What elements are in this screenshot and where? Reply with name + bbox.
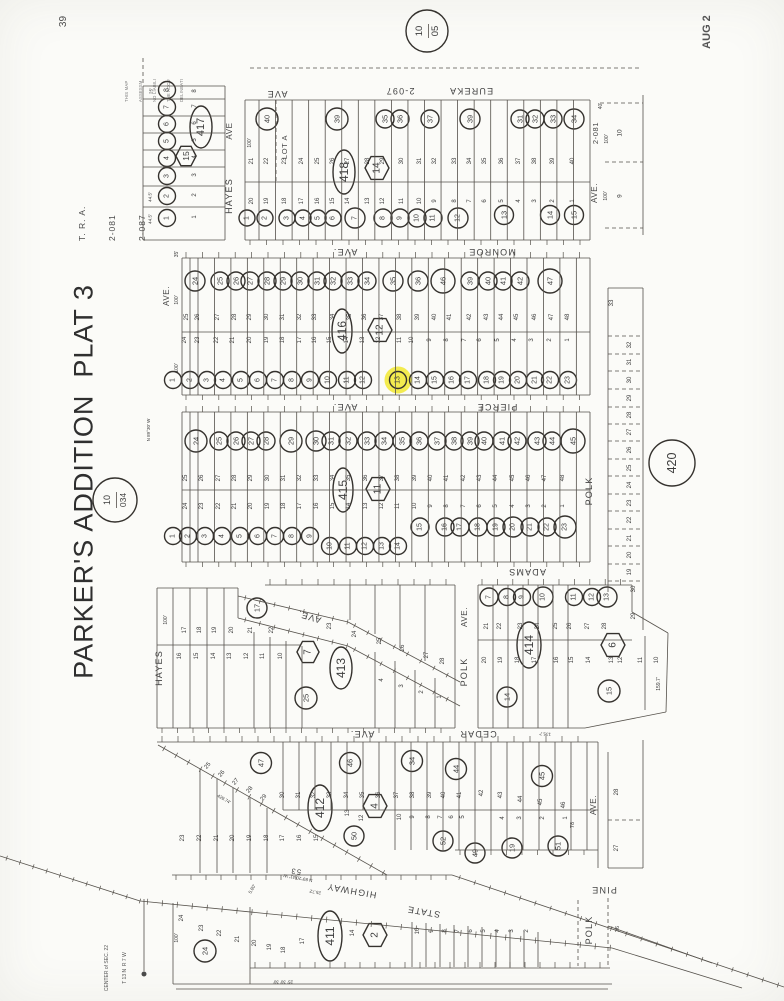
svg-text:29: 29 [247,313,253,320]
svg-text:9: 9 [617,194,624,198]
svg-text:30: 30 [265,474,271,481]
strip-420-lot-number-19: 19 [627,568,633,575]
block-418-top-parcel-circle-39: 39 [326,108,348,130]
svg-text:14: 14 [344,336,350,343]
block-416-lower-lot-number-17: 17 [297,336,303,343]
block-415-bottom-parcel-circles-b-13: 13 [374,538,391,555]
block-417-parcel-circles: 87654321 [159,82,176,227]
block-416-lower-lot-number-22: 22 [214,336,220,343]
block-413-top-lot-number-19: 19 [212,626,218,633]
block-418-bottom-lot-number-3: 3 [532,199,538,203]
svg-text:25: 25 [553,622,559,629]
svg-text:16: 16 [297,834,303,841]
svg-text:5: 5 [238,378,245,382]
block-412-lower-lot-numbers-b: 1312 [345,809,365,821]
street-cedar: CEDAR [459,729,497,739]
block-418-top-lot-number-35: 35 [482,157,488,164]
svg-text:27: 27 [345,157,351,164]
street-hayes-south: HAYES [154,650,164,686]
svg-text:17: 17 [297,502,303,509]
svg-text:32: 32 [297,474,303,481]
block-415-lower-lot-numbers: 242322212019181716151413121110987654321 [183,502,566,509]
block-413-wedge-lot-number-28: 28 [440,657,446,664]
svg-text:417: 417 [195,118,207,136]
block-411-left-lot-number-24: 24 [179,914,185,921]
strip-east-lot-numbers: 109 [617,129,624,198]
block-418-top-lot-number-32: 32 [432,157,438,164]
block-418-top-lot-number-36: 36 [499,157,505,164]
svg-text:34: 34 [330,313,336,320]
block-415-lower-lot-number-13: 13 [363,502,369,509]
block-416-lower-lot-number-18: 18 [280,336,286,343]
bearing-note: N 89°30' W [146,418,151,441]
svg-text:2: 2 [192,193,198,197]
block-418-bottom-parcel-circles: 123456789101112 [239,208,468,228]
block-415-lower-lot-number-19: 19 [265,502,271,509]
block-412-lower-lot-numbers-d: 4321 [500,816,569,820]
svg-text:35: 35 [398,437,407,445]
parcel-circle-17: 17 [247,598,267,618]
svg-text:5: 5 [237,534,244,538]
svg-text:18: 18 [282,197,288,204]
svg-text:18: 18 [280,336,286,343]
dim-100ft: 100' [247,138,253,147]
svg-text:21: 21 [249,157,255,164]
dim-100ft: 100' [604,134,610,143]
block-418-top-lot-number-29: 29 [380,157,386,164]
block-413-oval: 413 [330,647,352,689]
block-415-upper-lot-number-26: 26 [199,474,205,481]
block-415-upper-lot-number-28: 28 [232,474,238,481]
svg-text:414: 414 [522,635,536,655]
svg-text:7: 7 [272,378,279,382]
block-416-lower-lot-number-4: 4 [512,338,518,342]
block-418-top-lot-number-30: 30 [399,157,405,164]
svg-text:14: 14 [346,502,352,509]
block-412-upper-lot-numbers-east-46: 46 [561,801,567,808]
block-418-bottom-lot-number-13: 13 [365,197,371,204]
block-415-upper-lot-number-36: 36 [363,474,369,481]
block-413-bottom-lot-numbers-a-15: 15 [194,652,200,659]
svg-text:12: 12 [618,656,624,663]
svg-text:24: 24 [352,630,358,637]
dim-44-5ft: 44.5' [148,214,153,224]
svg-text:11: 11 [638,656,644,663]
svg-text:28: 28 [232,474,238,481]
block-413-top-lot-number-18: 18 [197,626,203,633]
block-418-top-lot-number-25: 25 [315,157,321,164]
dim-100ft: 100' [174,933,180,942]
block-411-right-lot-numbers: 1098765432 [415,927,530,934]
svg-text:24: 24 [179,914,185,921]
block-413-bottom-lot-numbers-a-11: 11 [260,652,266,659]
block-416-upper-lot-number-45: 45 [514,313,520,320]
block-416-upper-lot-number-25: 25 [184,313,190,320]
block-418-bottom-parcel-circle-5: 5 [310,210,326,226]
svg-text:8: 8 [289,534,296,538]
svg-text:36: 36 [414,277,423,285]
svg-text:7: 7 [352,216,359,220]
svg-text:3: 3 [532,199,538,203]
block-415-lower-lot-number-16: 16 [314,502,320,509]
block-415-bottom-parcel-circles-a-3: 3 [197,528,214,545]
svg-text:35: 35 [346,474,352,481]
block-418-bottom-lot-number-15: 15 [330,197,336,204]
block-412-upper-lot-number-40: 40 [441,791,447,798]
svg-text:13: 13 [360,336,366,343]
svg-text:21: 21 [248,626,254,633]
svg-text:3: 3 [529,338,535,342]
svg-text:31: 31 [280,313,286,320]
block-415-bottom-parcel-circles-b: 1011121314 [322,538,407,555]
svg-text:100': 100' [603,191,609,200]
svg-text:4: 4 [219,534,226,538]
svg-text:12: 12 [360,376,367,384]
block-412-lower-lot-numbers-d-2: 2 [540,816,546,820]
svg-text:22: 22 [216,502,222,509]
svg-text:21: 21 [532,376,539,384]
svg-text:33: 33 [452,157,458,164]
block-415-upper-lot-number-35: 35 [346,474,352,481]
block-415-lower-lot-number-12: 12 [379,502,385,509]
block-411-left-lot-number-19: 19 [267,943,273,950]
block-415-top-parcel-circle-31: 31 [322,432,340,450]
block-415-lower-lot-number-2: 2 [542,504,548,508]
block-416-upper-lot-number-39: 39 [415,313,421,320]
street-polk-mid: POLK [459,658,469,687]
svg-text:25: 25 [215,437,224,445]
svg-text:27: 27 [585,622,591,629]
svg-text:10: 10 [412,502,418,509]
svg-text:32: 32 [531,115,540,123]
block-412-lower-lot-numbers-c-10: 10 [397,813,403,820]
block-413-bottom-lot-numbers-a-13: 13 [227,652,233,659]
svg-text:28: 28 [232,313,238,320]
block-416-bottom-parcel-circle-4: 4 [215,372,232,389]
block-414-lower-lot-number-18: 18 [515,656,521,663]
svg-text:3: 3 [202,534,209,538]
block-416-top-parcel-circle-29: 29 [274,272,292,290]
block-415-bottom-parcel-circles-c-21: 21 [521,518,539,536]
svg-text:15: 15 [605,687,614,695]
block-415-bottom-parcel-circles-b-14: 14 [390,538,407,555]
svg-text:32: 32 [432,157,438,164]
strip-420-lot-number-29: 29 [627,394,633,401]
svg-text:25': 25' [149,88,154,94]
block-416-top-parcel-circle-33: 33 [341,272,359,290]
block-415-top-parcel-circle-39: 39 [461,432,479,450]
svg-text:41: 41 [498,437,507,445]
svg-text:100': 100' [174,295,180,304]
block-416-bottom-parcel-circle-23: 23 [560,372,577,389]
block-418-top-lot-number-31: 31 [417,157,423,164]
svg-text:28: 28 [246,785,255,794]
svg-text:21: 21 [232,502,238,509]
svg-text:14: 14 [586,656,592,663]
svg-text:42: 42 [516,277,525,285]
svg-text:26: 26 [232,277,241,285]
svg-text:39: 39 [412,474,418,481]
block-411-left-lot-number-23: 23 [199,924,205,931]
street-eureka: EUREKA [449,86,493,96]
block-415-bottom-parcel-circles-a-4: 4 [214,528,231,545]
svg-text:34: 34 [570,115,579,123]
block-416-upper-lot-number-48: 48 [565,313,571,320]
block-411-oval: 411 [318,911,342,961]
svg-text:3: 3 [204,378,211,382]
svg-text:46: 46 [532,313,538,320]
svg-text:13: 13 [379,542,386,550]
block-416-lower-lot-numbers: 242322212019181716151413121110987654321 [182,336,571,343]
street-eureka-tra: 2-097 [385,86,414,96]
block-418-top-parcel-circle-39: 39 [460,109,480,129]
block-418-bottom-lot-number-17: 17 [299,197,305,204]
block-416-bottom-parcel-circle-15: 15 [427,372,444,389]
svg-text:46: 46 [561,801,567,808]
strip-420-lot-number-20: 20 [627,551,633,558]
svg-text:19: 19 [627,568,633,575]
block-416-bottom-parcel-circle-10: 10 [320,372,337,389]
svg-text:26: 26 [232,437,241,445]
svg-text:8: 8 [452,199,458,203]
svg-text:47: 47 [542,474,548,481]
svg-text:11: 11 [399,197,405,204]
svg-text:9: 9 [307,378,314,382]
svg-text:41: 41 [457,791,463,798]
svg-text:4: 4 [512,338,518,342]
block-418-top-lot-number-38: 38 [532,157,538,164]
block-418-bottom-lot-number-12: 12 [380,197,386,204]
svg-text:27: 27 [247,437,256,445]
svg-text:5: 5 [164,139,171,143]
block-415-bottom-parcel-circles-b-11: 11 [340,538,357,555]
svg-text:3: 3 [399,684,405,688]
strip-420-lot-number-21: 21 [627,534,633,541]
block-415-upper-lot-number-47: 47 [542,474,548,481]
svg-text:13: 13 [363,502,369,509]
block-416-upper-lot-number-46: 46 [532,313,538,320]
svg-text:5: 5 [192,138,198,142]
block-412-diagonal-lot-number-27: 27 [232,777,241,786]
svg-text:27: 27 [215,313,221,320]
block-415-upper-lot-number-34: 34 [330,474,336,481]
svg-text:35': 35' [174,251,180,258]
block-415-top-parcel-circle-29: 29 [280,430,302,452]
svg-text:26: 26 [218,769,227,778]
svg-text:4: 4 [164,156,171,160]
svg-text:29: 29 [380,157,386,164]
block-415-top-parcel-circle-36: 36 [410,432,428,450]
svg-text:25: 25 [315,157,321,164]
svg-text:26: 26 [199,474,205,481]
svg-text:34: 34 [380,437,389,445]
block-415-bottom-parcel-circles-b-12: 12 [357,538,374,555]
strip-420-lot-number-26: 26 [627,446,633,453]
svg-text:8: 8 [380,216,387,220]
block-416-top-parcel-circle-46: 46 [431,269,455,293]
svg-text:43: 43 [484,313,490,320]
svg-text:11: 11 [395,502,401,509]
block-418-top-parcel-circles: 40393536373931323334 [256,108,584,130]
svg-text:8: 8 [504,595,511,599]
svg-text:12: 12 [244,652,250,659]
block-415-lower-lot-number-24: 24 [183,502,189,509]
svg-text:29: 29 [248,474,254,481]
svg-text:39: 39 [333,115,342,123]
block-412-top-parcel-circle-46: 46 [340,753,361,774]
svg-text:34: 34 [363,277,372,285]
svg-text:18: 18 [484,376,491,384]
block-418-bottom-lot-number-1: 1 [570,199,576,203]
strip-420-lot-number-27: 27 [627,428,633,435]
sheet-index-circle: 10 05 [406,10,448,52]
block-416-upper-lot-number-32: 32 [297,313,303,320]
svg-text:9: 9 [519,595,526,599]
svg-text:5: 5 [315,216,322,220]
svg-text:20: 20 [252,939,258,946]
svg-text:41: 41 [447,313,453,320]
svg-text:21: 21 [527,523,534,531]
block-415-upper-lot-number-39: 39 [412,474,418,481]
block-412-top-parcel-circle-34: 34 [402,751,423,772]
svg-text:27: 27 [614,844,620,851]
block-418-bottom-lot-number-2: 2 [550,199,556,203]
block-418-top-lot-number-40: 40 [570,157,576,164]
block-411-left-lot-number-20: 20 [252,939,258,946]
svg-text:19: 19 [267,943,273,950]
map-number-bottom: 034 [118,493,128,507]
svg-text:40: 40 [441,791,447,798]
svg-text:42: 42 [467,313,473,320]
block-415-lower-lot-number-21: 21 [232,502,238,509]
block-418-bottom-parcel-circle-7: 7 [345,208,365,228]
block-418-bottom-lot-number-7: 7 [467,199,473,203]
dim-429-74ft: 429.74' [216,793,231,805]
street-monroe-ave: AVE. [333,247,358,257]
block-412-lower-lot-numbers-d-3: 3 [517,816,523,820]
dim-100ft: 100' [174,295,180,304]
block-412-lower-lot-numbers-b-12: 12 [359,814,365,821]
svg-text:31: 31 [516,115,525,123]
block-412-diagonal-lot-number-26: 26 [218,769,227,778]
svg-text:39: 39 [466,277,475,285]
svg-text:41: 41 [499,277,508,285]
svg-text:34: 34 [408,757,417,765]
svg-text:10: 10 [414,214,421,222]
svg-text:24: 24 [201,947,210,955]
svg-text:34: 34 [467,157,473,164]
highlighted-parcel-13[interactable]: 13 [385,367,412,394]
svg-text:28: 28 [614,788,620,795]
street-hayes-north: HAYES [224,178,234,214]
svg-text:9: 9 [428,504,434,508]
block-415-upper-lot-number-32: 32 [297,474,303,481]
block-415-bottom-parcel-circles-a: 123456789 [165,528,319,545]
svg-text:100': 100' [604,134,610,143]
svg-text:20: 20 [482,656,488,663]
block-415-bottom-parcel-circles-c-22: 22 [538,518,556,536]
dim-100ft: 100' [603,191,609,200]
svg-text:20: 20 [249,197,255,204]
block-414-upper-lot-numbers: 2122232425262728 [484,622,608,629]
svg-text:22: 22 [217,929,223,936]
svg-text:1: 1 [565,338,571,342]
svg-text:11: 11 [344,376,351,383]
svg-text:13: 13 [604,593,611,601]
svg-text:6: 6 [164,122,171,126]
block-414-lower-lot-number-13: 13 [609,656,615,663]
block-418-bottom-lot-number-14: 14 [345,197,351,204]
svg-text:22: 22 [264,157,270,164]
svg-text:11: 11 [373,483,384,494]
svg-text:19: 19 [264,336,270,343]
svg-text:37: 37 [379,313,385,320]
block-418-bottom-lot-number-9: 9 [432,199,438,203]
block-415-upper-lot-number-30: 30 [265,474,271,481]
svg-text:43: 43 [498,791,504,798]
svg-text:39: 39 [550,157,556,164]
svg-text:429.74': 429.74' [216,793,231,805]
block-418-bottom-lot-number-20: 20 [249,197,255,204]
street-state: STATE [406,904,441,920]
block-416-top-parcel-circle-24: 24 [185,271,205,291]
svg-text:32: 32 [344,437,353,445]
block-415-top-parcel-circles: 2425262728293031323334353637383940414243… [185,429,585,453]
block-418-bottom-lot-number-5: 5 [499,199,505,203]
plat-map: 10 05 10 034 N 89°30' W AVE 2-097 EUREKA… [0,0,784,1001]
block-418-top-parcel-circle-33: 33 [544,110,562,128]
strip-420-lot-number-30: 30 [627,376,633,383]
block-412-lower-lot-numbers-c: 1098765 [397,813,466,820]
block-412-upper-lot-numbers-east-42: 42 [479,789,485,796]
svg-text:38: 38 [532,157,538,164]
block-415-bottom-parcel-circles-c-15: 15 [411,518,429,536]
svg-text:28: 28 [262,437,271,445]
svg-text:15: 15 [330,502,336,509]
svg-text:34: 34 [330,474,336,481]
svg-text:22: 22 [544,523,551,531]
block-413-bottom-lot-numbers-a-12: 12 [244,652,250,659]
street-polk-mid-ave: AVE. [460,607,469,627]
svg-text:38: 38 [450,437,459,445]
svg-text:27: 27 [216,474,222,481]
svg-text:7: 7 [192,104,198,108]
svg-text:36: 36 [396,115,405,123]
svg-text:26: 26 [627,446,633,453]
block-415-top-parcel-circle-24: 24 [185,430,207,452]
strip-420-lot-number-24: 24 [627,481,633,488]
svg-text:17: 17 [299,197,305,204]
block-416-top-parcel-circle-34: 34 [358,272,376,290]
svg-text:100': 100' [163,615,169,624]
svg-text:33: 33 [314,474,320,481]
svg-text:37: 37 [379,474,385,481]
block-413-bottom-lot-numbers-a-14: 14 [211,652,217,659]
strip-420-lot-number-23: 23 [627,499,633,506]
svg-text:9: 9 [432,199,438,203]
block-412-top-parcel-circle-44: 44 [446,759,467,780]
svg-text:4: 4 [516,199,522,203]
street-polk-east: POLK [584,477,594,506]
block-412-diagonal-lot-number-25: 25 [204,761,213,770]
svg-text:17: 17 [300,937,306,944]
block-420-circle: 420 [649,440,695,486]
svg-text:37: 37 [433,437,442,445]
lot-number-33: 33 [609,299,615,306]
block-416-top-parcel-circle-36: 36 [408,271,428,291]
block-417-parcel-circle-5: 5 [159,133,176,150]
svg-text:10: 10 [617,129,624,137]
